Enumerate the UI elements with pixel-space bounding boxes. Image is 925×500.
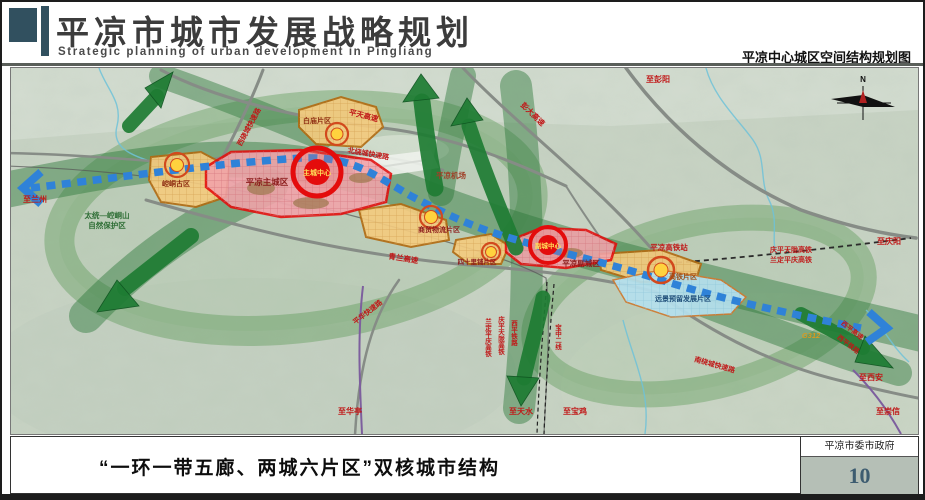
label-to-baoji: 至宝鸡 [563, 406, 587, 416]
logo-bar [41, 6, 49, 56]
label-to-chongxin: 至崇信 [876, 406, 900, 416]
map-frame: N 至兰州 至彭阳 至庆阳 至西安 至崇信 至华亭 至天水 至宝鸡 平天高速 彭… [10, 67, 919, 435]
label-hsr-1: 庆平天陇高铁 [769, 245, 812, 254]
label-main-city: 平凉主城区 [246, 177, 289, 187]
planning-map: N 至兰州 至彭阳 至庆阳 至西安 至崇信 至华亭 至天水 至宝鸡 平天高速 彭… [11, 68, 918, 434]
bottom-rule [2, 494, 923, 498]
label-airport: 平凉机场 [436, 170, 466, 180]
label-reserved: 远景预留发展片区 [655, 294, 711, 303]
compass-label: N [860, 75, 866, 84]
label-hsr-station: 平凉高铁站 [650, 242, 688, 252]
label-kongtong: 崆峒古区 [162, 179, 190, 188]
plan-sheet: 平凉市城市发展战略规划 Strategic planning of urban … [0, 0, 925, 500]
page-number: 10 [801, 457, 918, 494]
label-main-center: 主城中心 [303, 168, 331, 177]
label-hsr-2: 兰定平庆高铁 [770, 255, 812, 264]
header: 平凉市城市发展战略规划 Strategic planning of urban … [2, 2, 923, 64]
label-to-lanzhou: 至兰州 [23, 194, 47, 204]
label-trade: 商贸物流片区 [418, 225, 460, 234]
logo-square [9, 8, 37, 42]
label-to-xian: 至西安 [859, 372, 883, 382]
label-to-qingyang: 至庆阳 [877, 236, 901, 246]
label-reserve-2: 自然保护区 [88, 220, 126, 230]
label-reserve-1: 太统—崆峒山 [85, 210, 130, 220]
label-sishilipu: 四十里铺片区 [458, 257, 498, 266]
title-block: 平凉市委市政府 10 [800, 437, 918, 493]
label-g312: G312 [802, 331, 821, 340]
agency-name: 平凉市委市政府 [801, 437, 918, 457]
page-subtitle-en: Strategic planning of urban development … [58, 46, 433, 58]
label-baimiao: 白庙片区 [303, 116, 331, 125]
label-to-pengyang: 至彭阳 [646, 74, 670, 84]
label-sub-center: 副城中心 [535, 241, 562, 250]
label-to-huating: 至华亭 [338, 406, 362, 416]
label-hsr-zone: 高铁片区 [669, 272, 697, 281]
footer: “一环一带五廊、两城六片区”双核城市结构 平凉市委市政府 10 [10, 436, 919, 494]
header-rule [2, 63, 923, 66]
label-sub-city: 平凉副城区 [562, 258, 600, 268]
label-to-tianshui: 至天水 [509, 406, 534, 416]
structure-caption: “一环一带五廊、两城六片区”双核城市结构 [99, 453, 500, 480]
